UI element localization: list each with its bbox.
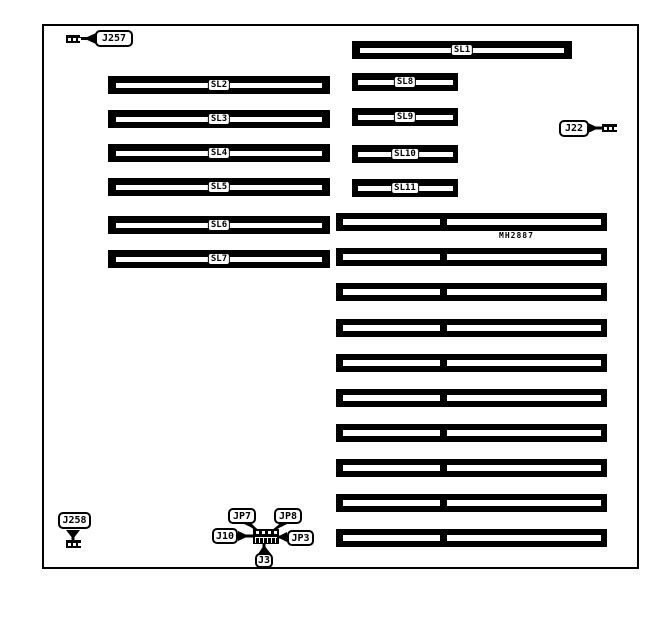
memory-bank-3	[336, 283, 607, 301]
callout-jp3: JP3	[287, 530, 314, 546]
memory-bank-8	[336, 459, 607, 477]
slot-sl1: SL1	[352, 41, 572, 59]
j22-connector-icon	[602, 124, 617, 132]
callout-j22: J22	[559, 120, 589, 137]
slot-label-sl5: SL5	[208, 181, 230, 193]
pin	[73, 38, 76, 41]
jumper-hatch	[255, 537, 277, 543]
pin	[256, 531, 259, 534]
slot-label-sl10: SL10	[391, 148, 419, 160]
pin	[68, 543, 71, 546]
slot-sl2: SL2	[108, 76, 330, 94]
slot-sl11: SL11	[352, 179, 458, 197]
pin	[78, 543, 81, 546]
memory-bank-9	[336, 494, 607, 512]
bank-contact-stripe	[447, 360, 601, 366]
pin	[274, 531, 277, 534]
bank-contact-stripe	[447, 430, 601, 436]
slot-label-sl9: SL9	[394, 111, 416, 123]
memory-bank-7	[336, 424, 607, 442]
slot-label-sl3: SL3	[208, 113, 230, 125]
slot-sl3: SL3	[108, 110, 330, 128]
bank-contact-stripe	[343, 465, 440, 471]
bank-contact-stripe	[447, 254, 601, 260]
bank-contact-stripe	[447, 325, 601, 331]
bank-contact-stripe	[343, 395, 440, 401]
callout-jp7: JP7	[228, 508, 256, 524]
slot-sl9: SL9	[352, 108, 458, 126]
bank-contact-stripe	[447, 500, 601, 506]
memory-bank-10	[336, 529, 607, 547]
jumper-pins	[254, 531, 278, 534]
part-number-text: MH2887	[499, 231, 534, 240]
slot-sl5: SL5	[108, 178, 330, 196]
jumper-block	[253, 529, 279, 544]
pin	[262, 531, 265, 534]
pin	[604, 127, 607, 130]
slot-label-sl1: SL1	[451, 44, 473, 56]
slot-sl10: SL10	[352, 145, 458, 163]
slot-label-sl2: SL2	[208, 79, 230, 91]
bank-contact-stripe	[447, 535, 601, 541]
memory-bank-2	[336, 248, 607, 266]
callout-j258: J258	[58, 512, 91, 529]
j258-connector-icon	[66, 540, 81, 548]
bank-contact-stripe	[343, 219, 440, 225]
bank-contact-stripe	[343, 535, 440, 541]
slot-label-sl6: SL6	[208, 219, 230, 231]
slot-label-sl11: SL11	[391, 182, 419, 194]
pin	[609, 127, 612, 130]
pin	[68, 38, 71, 41]
bank-contact-stripe	[343, 360, 440, 366]
slot-sl6: SL6	[108, 216, 330, 234]
pin	[614, 127, 617, 130]
board-diagram-page: SL2 SL3 SL4 SL5 SL6 SL7 SL1 SL8 SL9 SL10…	[0, 0, 649, 620]
slot-sl8: SL8	[352, 73, 458, 91]
bank-contact-stripe	[343, 430, 440, 436]
slot-sl7: SL7	[108, 250, 330, 268]
bank-contact-stripe	[343, 254, 440, 260]
callout-j3: J3	[255, 553, 273, 568]
bank-contact-stripe	[343, 289, 440, 295]
memory-bank-6	[336, 389, 607, 407]
bank-contact-stripe	[343, 500, 440, 506]
memory-bank-1	[336, 213, 607, 231]
callout-j10: J10	[212, 528, 238, 544]
bank-contact-stripe	[447, 465, 601, 471]
bank-contact-stripe	[447, 289, 601, 295]
callout-j257: J257	[95, 30, 133, 47]
bank-contact-stripe	[447, 219, 601, 225]
slot-label-sl4: SL4	[208, 147, 230, 159]
slot-label-sl7: SL7	[208, 253, 230, 265]
memory-bank-4	[336, 319, 607, 337]
callout-jp8: JP8	[274, 508, 302, 524]
j257-connector-icon	[66, 35, 80, 43]
bank-contact-stripe	[343, 325, 440, 331]
pin	[78, 38, 81, 41]
memory-bank-5	[336, 354, 607, 372]
slot-label-sl8: SL8	[394, 76, 416, 88]
bank-contact-stripe	[447, 395, 601, 401]
slot-sl4: SL4	[108, 144, 330, 162]
pin	[73, 543, 76, 546]
pin	[268, 531, 271, 534]
